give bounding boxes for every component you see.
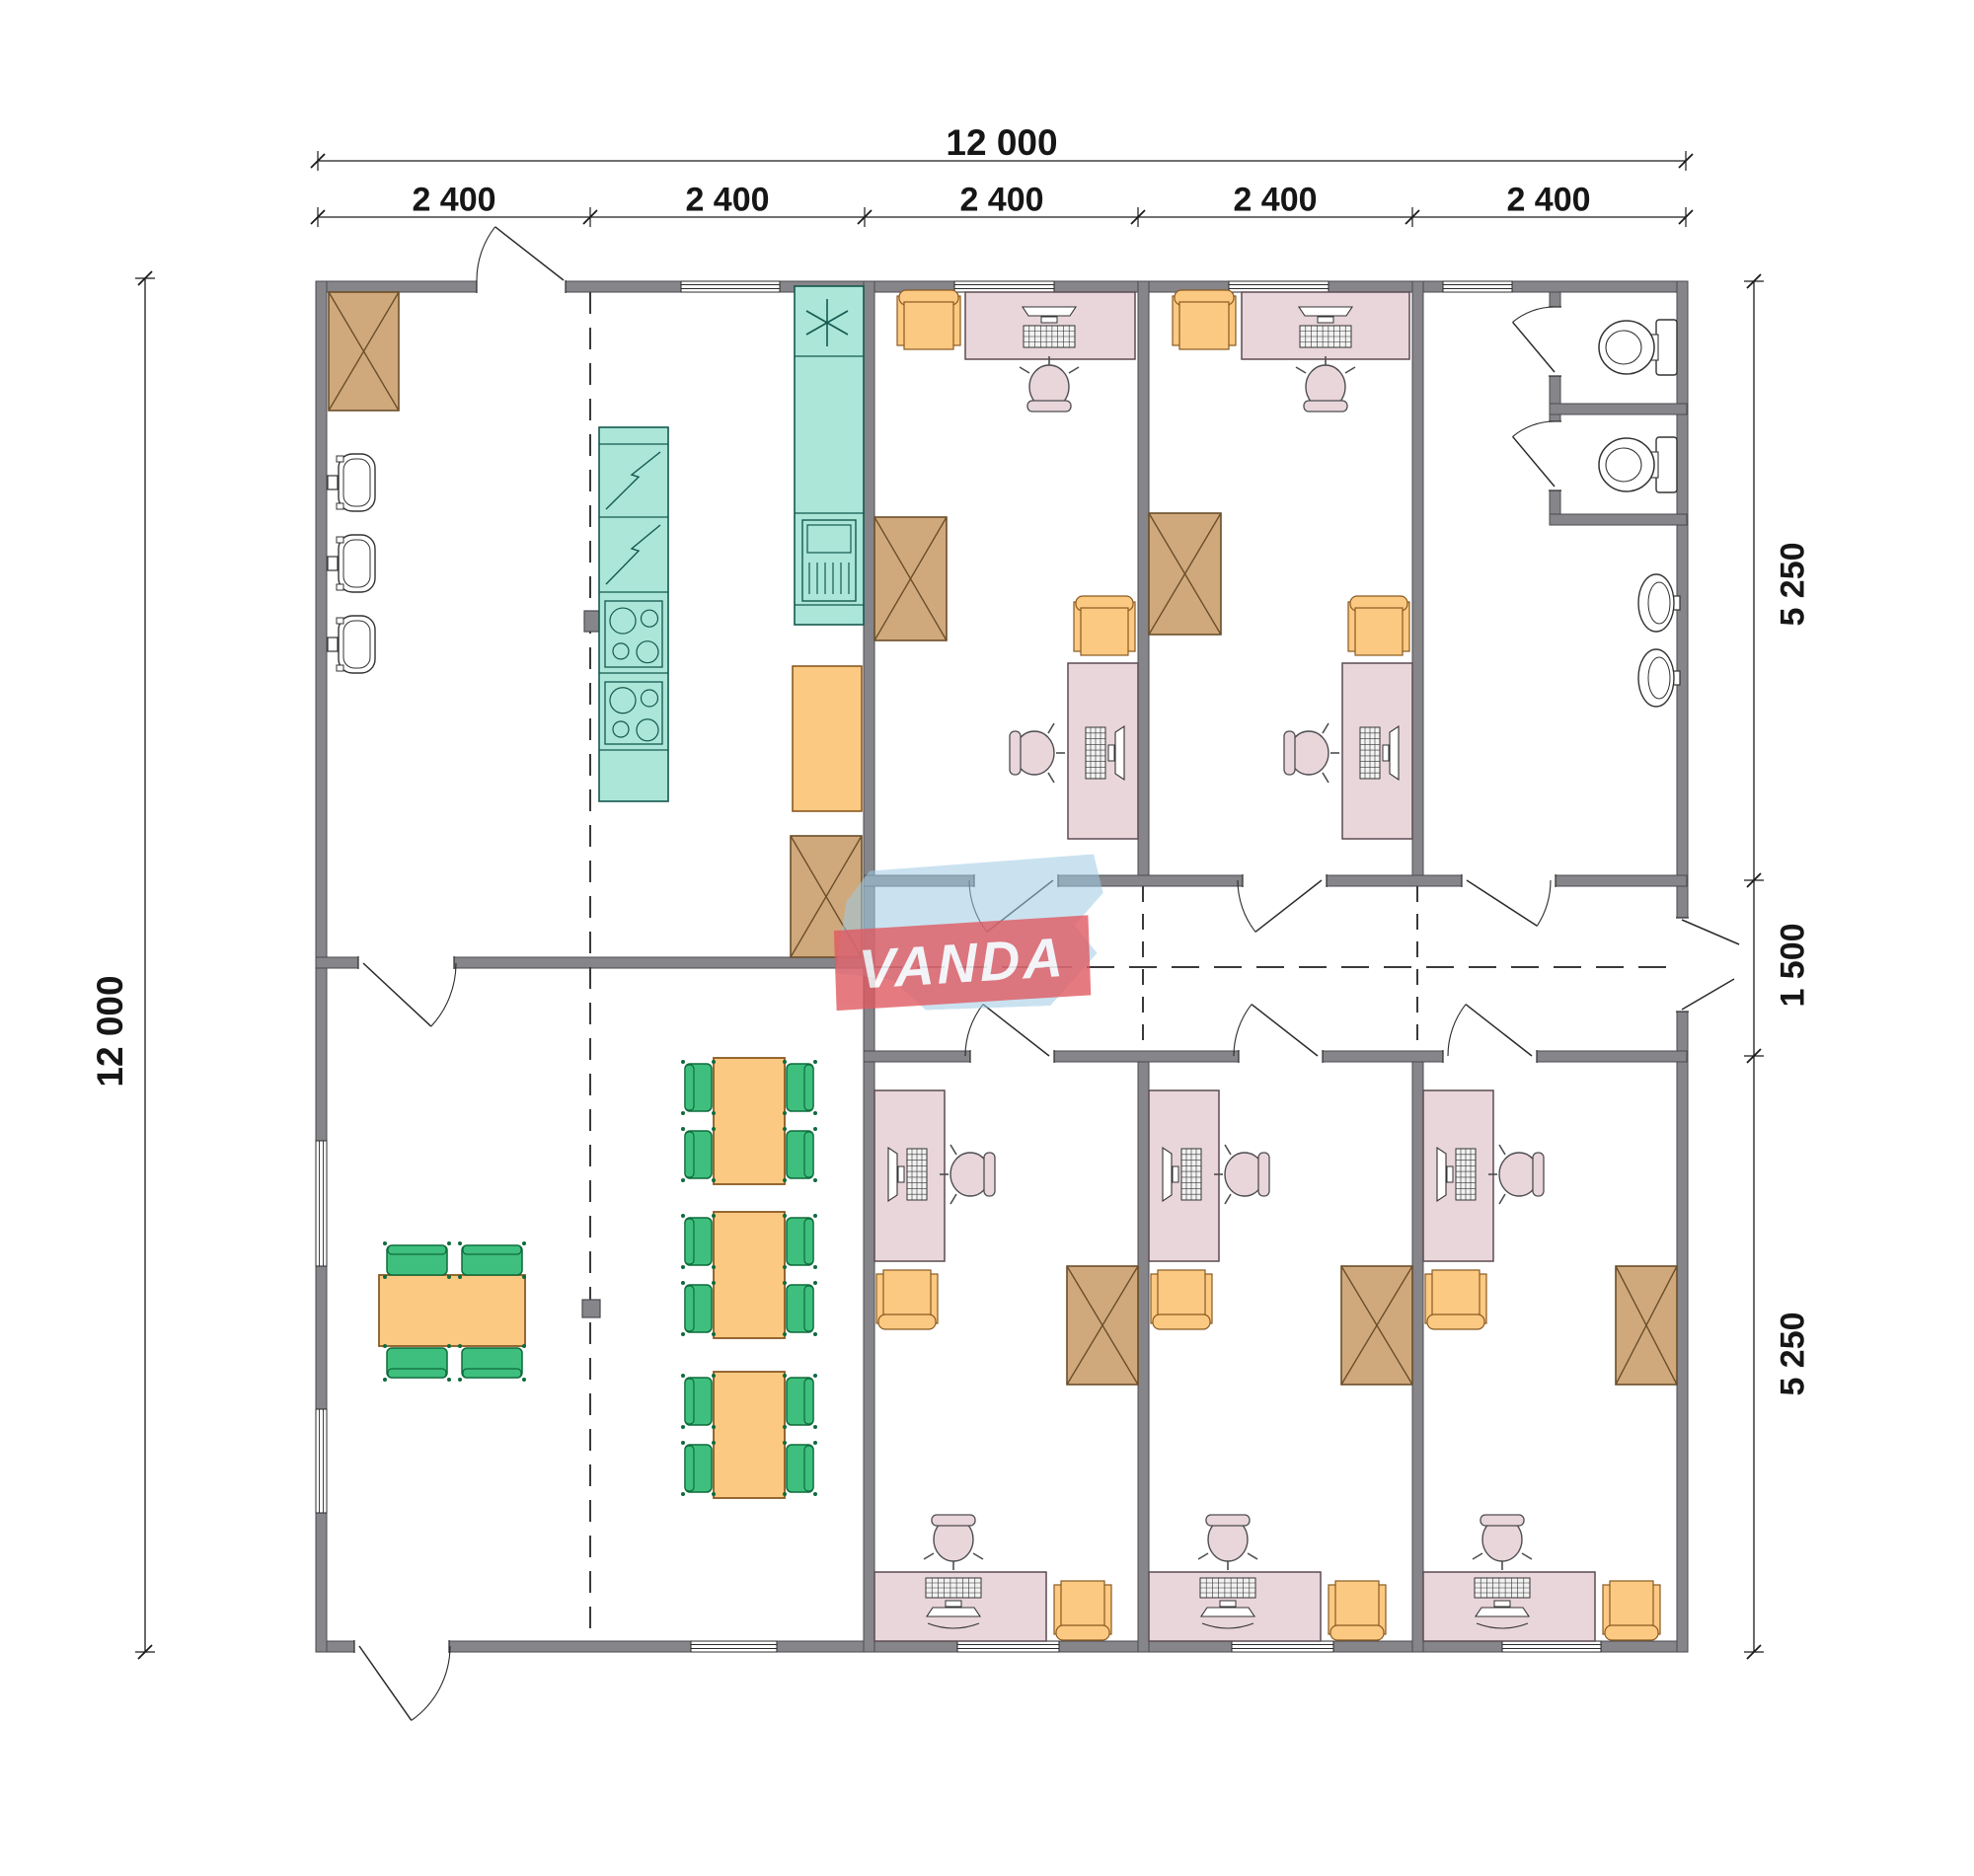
dimension-segment: 2 400 bbox=[1233, 182, 1317, 220]
office-desk bbox=[1068, 663, 1138, 839]
office-desk bbox=[965, 292, 1135, 359]
visitor-armchair bbox=[1173, 290, 1236, 349]
visitor-armchair bbox=[1329, 1581, 1386, 1640]
office-desk bbox=[1423, 1090, 1493, 1261]
office-chair bbox=[1010, 723, 1065, 783]
dining-chair bbox=[681, 1441, 716, 1496]
visitor-armchair bbox=[1074, 596, 1135, 655]
logo-red-band: VANDA bbox=[834, 916, 1091, 1011]
wall-sink bbox=[328, 616, 375, 673]
office-chair bbox=[1020, 356, 1079, 412]
logo-text: VANDA bbox=[858, 925, 1067, 1002]
office-desk bbox=[1342, 663, 1412, 839]
dining-chair bbox=[458, 1241, 526, 1279]
dimension-segment: 2 400 bbox=[959, 182, 1043, 220]
wash-basin bbox=[1638, 574, 1680, 632]
visitor-armchair bbox=[1348, 596, 1409, 655]
visitor-armchair bbox=[1151, 1270, 1212, 1329]
dining-chair bbox=[681, 1374, 716, 1429]
storage-cabinet bbox=[1341, 1266, 1412, 1385]
dining-chair bbox=[458, 1344, 526, 1382]
wash-basin bbox=[1638, 649, 1680, 707]
office-chair bbox=[1284, 723, 1339, 783]
dining-table bbox=[714, 1212, 785, 1338]
dimension-segment: 2 400 bbox=[412, 182, 495, 220]
dining-table bbox=[714, 1372, 785, 1498]
office-desk bbox=[874, 1572, 1046, 1641]
dimension-total-width: 12 000 bbox=[946, 122, 1057, 164]
storage-cabinet bbox=[1067, 1266, 1138, 1385]
dimension-segment: 5 250 bbox=[1775, 542, 1813, 626]
dimension-segment: 5 250 bbox=[1775, 1312, 1813, 1395]
office-desk bbox=[874, 1090, 945, 1261]
dining-chair bbox=[681, 1281, 716, 1336]
wall-sink bbox=[328, 535, 375, 592]
dining-table bbox=[379, 1275, 525, 1346]
dimension-segment: 1 500 bbox=[1775, 923, 1813, 1007]
dimension-segment: 2 400 bbox=[685, 182, 769, 220]
office-chair bbox=[1198, 1515, 1257, 1570]
kitchen-appliance-island bbox=[599, 427, 668, 801]
office-chair bbox=[1488, 1145, 1544, 1204]
dining-chair bbox=[383, 1344, 451, 1382]
storage-cabinet bbox=[1616, 1266, 1677, 1385]
dining-chair bbox=[783, 1060, 817, 1115]
storage-cabinet bbox=[1149, 513, 1221, 635]
toilet bbox=[1599, 320, 1677, 375]
dining-chair bbox=[681, 1060, 716, 1115]
office-desk bbox=[1423, 1572, 1595, 1641]
service-table bbox=[793, 666, 862, 811]
toilet bbox=[1599, 437, 1677, 492]
dining-chair bbox=[783, 1214, 817, 1269]
storage-cabinet bbox=[329, 292, 399, 411]
dining-chair bbox=[783, 1374, 817, 1429]
dining-chair bbox=[681, 1127, 716, 1182]
wall-sink bbox=[328, 454, 375, 511]
office-chair bbox=[1473, 1515, 1532, 1570]
office-chair bbox=[1214, 1145, 1269, 1204]
office-desk bbox=[1242, 292, 1409, 359]
visitor-armchair bbox=[1603, 1581, 1660, 1640]
dining-chair bbox=[681, 1214, 716, 1269]
vanda-watermark-logo: VANDA bbox=[831, 854, 1106, 1013]
office-chair bbox=[1296, 356, 1355, 412]
storage-cabinet bbox=[874, 517, 947, 640]
dimension-total-height: 12 000 bbox=[90, 975, 131, 1087]
visitor-armchair bbox=[1054, 1581, 1111, 1640]
office-chair bbox=[940, 1145, 995, 1204]
dining-chair bbox=[783, 1127, 817, 1182]
dining-chair bbox=[783, 1441, 817, 1496]
visitor-armchair bbox=[876, 1270, 938, 1329]
office-desk bbox=[1149, 1090, 1219, 1261]
floor-plan-canvas: 12 000 2 400 2 400 2 400 2 400 2 400 12 … bbox=[0, 0, 1974, 1876]
visitor-armchair bbox=[1425, 1270, 1486, 1329]
dining-table bbox=[714, 1058, 785, 1184]
dining-chair bbox=[383, 1241, 451, 1279]
counter-with-sink bbox=[795, 286, 864, 625]
office-desk bbox=[1149, 1572, 1321, 1641]
dimension-segment: 2 400 bbox=[1506, 182, 1590, 220]
dining-chair bbox=[783, 1281, 817, 1336]
visitor-armchair bbox=[897, 290, 960, 349]
office-chair bbox=[924, 1515, 983, 1570]
